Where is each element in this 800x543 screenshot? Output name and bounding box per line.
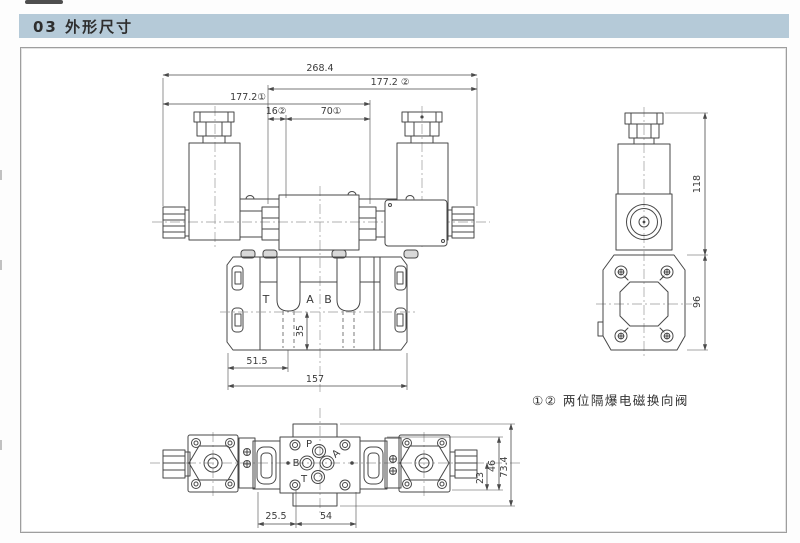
technical-drawing: 268.4 177.2 ② 177.2① 16② 70① (0, 0, 800, 543)
port-slot (337, 257, 360, 311)
screw-head-icon (348, 192, 356, 196)
right-coil-flange (399, 435, 450, 492)
subplate: T A B 35 51.5 157 (220, 250, 418, 390)
dim-25-5: 25.5 (265, 511, 286, 522)
dim-35: 35 (295, 325, 306, 337)
front-view: 268.4 177.2 ② 177.2① 16② 70① (152, 63, 490, 392)
dim-23: 23 (475, 472, 486, 484)
bottom-view-dimensions-right: 23 46 73.4 (340, 424, 515, 506)
port-label-t: T (262, 293, 270, 306)
port-label-b: B (324, 293, 332, 306)
dim-51-5: 51.5 (246, 356, 267, 367)
screw-head-icon (246, 196, 254, 199)
port-slot (277, 257, 300, 311)
dim-54: 54 (320, 511, 332, 522)
dim-96: 96 (692, 296, 703, 308)
nameplate (385, 200, 447, 246)
valve-body (240, 192, 447, 251)
left-end-cap (163, 207, 189, 238)
dim-16: 16② (266, 106, 287, 117)
port-label-b: B (293, 458, 300, 469)
right-end-cap (448, 207, 474, 238)
hex-nut-icon (359, 207, 376, 240)
hex-nut-icon (262, 207, 279, 240)
bottom-view: P A B T (150, 408, 520, 528)
dim-118: 118 (692, 175, 703, 193)
screw-head-icon (406, 196, 414, 199)
side-view: 118 96 (596, 107, 708, 358)
port-label-a: A (306, 293, 314, 306)
dim-46: 46 (487, 460, 498, 472)
port-label-t: T (300, 474, 308, 485)
scanned-page: 03 外形尺寸 ①② 两位隔爆电磁换向阀 (0, 0, 800, 543)
dim-157: 157 (306, 374, 324, 385)
dim-width-solenoid1: 177.2① (230, 92, 266, 103)
bottom-view-dimensions-bottom: 25.5 54 (258, 490, 356, 528)
left-solenoid (189, 112, 240, 240)
dim-70: 70① (321, 106, 342, 117)
dim-overall-width: 268.4 (306, 63, 333, 74)
left-cable-gland-icon (197, 122, 231, 136)
dim-width-solenoid2: 177.2 ② (371, 77, 410, 88)
front-dimensions: 268.4 177.2 ② 177.2① 16② 70① (163, 63, 477, 119)
port-label-p: P (306, 439, 312, 450)
dim-73-4: 73.4 (499, 456, 510, 477)
front-centerlines (152, 106, 490, 392)
